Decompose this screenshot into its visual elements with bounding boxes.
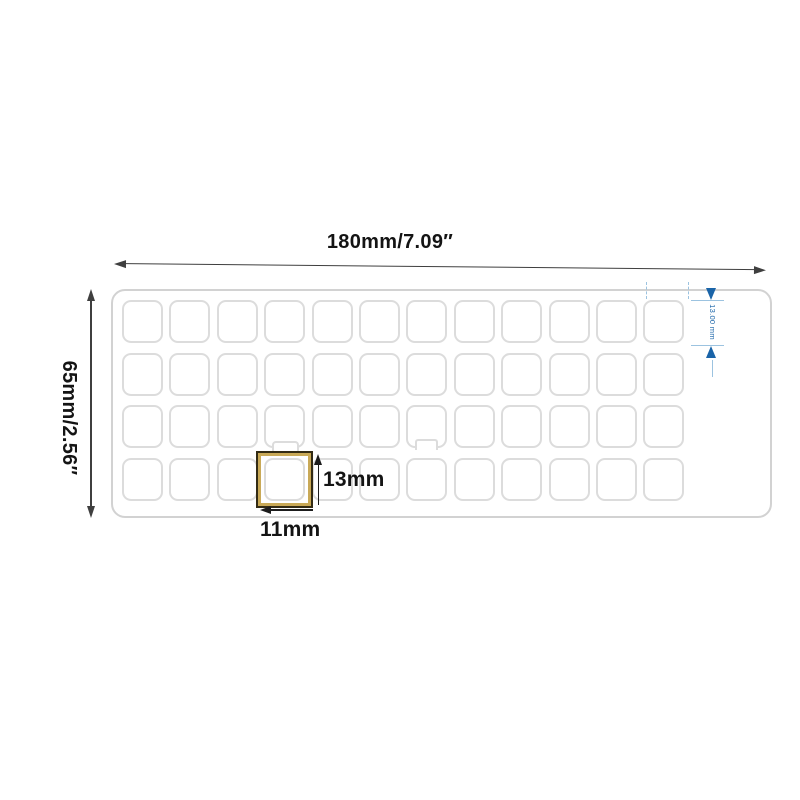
sticker-cell [596, 458, 637, 501]
sticker-cell [169, 405, 210, 448]
sticker-cell [643, 458, 684, 501]
blue-extension-dashed-line [646, 282, 647, 299]
sticker-cell [122, 300, 163, 343]
sticker-sheet [111, 289, 772, 518]
sheet-height-label: 65mm/2.56″ [56, 354, 80, 482]
blue-arrow-stem [712, 360, 713, 377]
sticker-cell [596, 300, 637, 343]
sticker-cell [501, 405, 542, 448]
sticker-cell [643, 300, 684, 343]
blue-extension-dashed-line [688, 282, 689, 299]
sticker-cell [406, 300, 447, 343]
highlighted-sticker-outline [256, 451, 313, 508]
sticker-cell [454, 458, 495, 501]
sticker-cell [454, 405, 495, 448]
sticker-cell [359, 405, 400, 448]
sticker-cell [169, 458, 210, 501]
sticker-width-label: 11mm [260, 518, 314, 542]
sticker-cell [549, 405, 590, 448]
sticker-cell [501, 353, 542, 396]
sticker-cell [501, 300, 542, 343]
sticker-cell [122, 405, 163, 448]
sheet-height-dimension-line [86, 289, 96, 518]
sticker-width-arrow [268, 509, 313, 511]
sticker-cell [501, 458, 542, 501]
sticker-cell [264, 353, 305, 396]
arrowhead-down-icon [87, 506, 95, 518]
sticker-cell [169, 300, 210, 343]
sticker-grid [122, 300, 684, 501]
sticker-cell [359, 300, 400, 343]
sticker-cell [549, 300, 590, 343]
sticker-cell [643, 353, 684, 396]
sticker-height-label: 13mm [323, 468, 385, 492]
row-height-label: 13.00 mm [707, 302, 717, 342]
sticker-cell [454, 300, 495, 343]
sticker-cell [217, 405, 258, 448]
sticker-cell [359, 353, 400, 396]
sticker-cell [406, 353, 447, 396]
sticker-cell [454, 353, 495, 396]
sticker-cell [549, 353, 590, 396]
sticker-cell [122, 353, 163, 396]
arrowhead-right-icon [754, 266, 766, 274]
sticker-cell [596, 405, 637, 448]
die-cut-notch [415, 439, 438, 450]
sheet-width-label: 180mm/7.09″ [290, 231, 490, 254]
sticker-cell [122, 458, 163, 501]
sticker-cell [217, 300, 258, 343]
sheet-width-dimension-line [114, 259, 766, 274]
dimension-line-stem [90, 298, 92, 509]
sticker-height-arrow [318, 461, 320, 505]
sticker-cell [217, 458, 258, 501]
sticker-cell [264, 300, 305, 343]
blue-arrowhead-up-icon [706, 346, 716, 358]
sticker-cell [643, 405, 684, 448]
dimension-line-stem [123, 263, 757, 271]
blue-arrowhead-down-icon [706, 288, 716, 300]
sticker-cell [596, 353, 637, 396]
sticker-cell [217, 353, 258, 396]
keyboard-sticker-dimension-diagram: 180mm/7.09″ 65mm/2.56″ 13mm 11mm 13.00 m… [0, 0, 800, 800]
sticker-cell [549, 458, 590, 501]
sticker-cell [312, 405, 353, 448]
sticker-cell [406, 458, 447, 501]
sticker-cell [169, 353, 210, 396]
sticker-cell [312, 353, 353, 396]
sticker-cell [312, 300, 353, 343]
